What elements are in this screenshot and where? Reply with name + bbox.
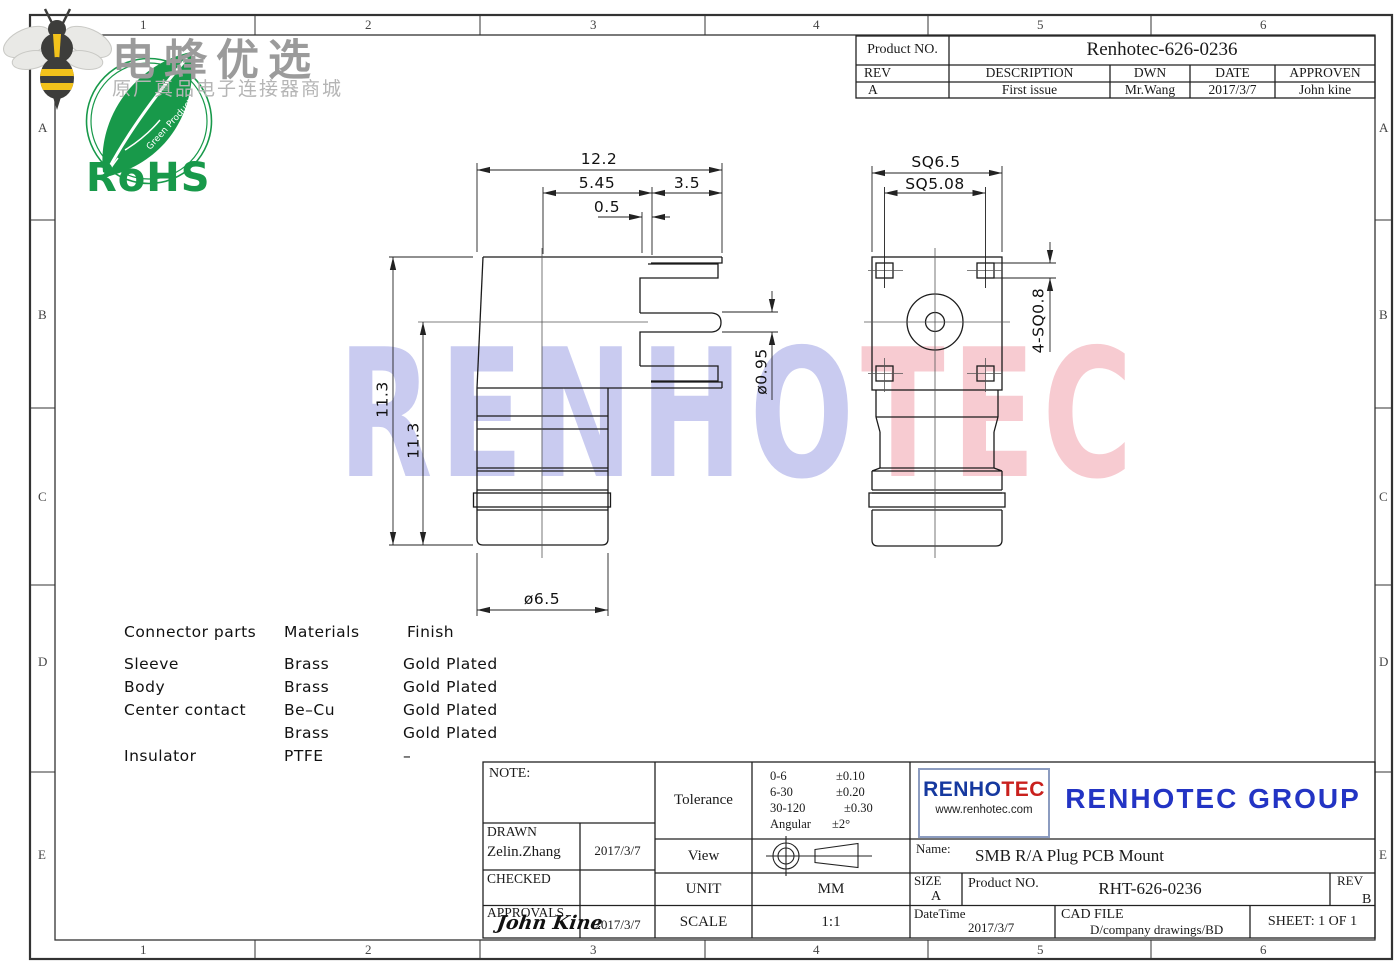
projection-symbol: [766, 836, 872, 876]
brand-slogan: 原厂真品电子连接器商城: [112, 74, 343, 101]
sheet-frame: [30, 15, 1392, 959]
logo-text-tec: TEC: [1001, 778, 1045, 801]
drawing-linework: [0, 0, 1397, 962]
logo-text-renho: RENHO: [923, 778, 1001, 801]
front-view-object: [869, 257, 1005, 546]
renhotec-logo-box: RENHOTEC www.renhotec.com: [918, 768, 1050, 838]
rohs-wordmark: RoHS: [86, 155, 211, 201]
bee-logo-icon: [0, 9, 116, 110]
front-view-dims: [872, 166, 1056, 352]
side-view-object: [474, 257, 723, 545]
renhotec-url: www.renhotec.com: [920, 804, 1048, 816]
company-name: RENHOTEC GROUP: [1058, 783, 1368, 815]
renhotec-logo-text: RENHOTEC: [920, 778, 1048, 802]
engineering-drawing-sheet: { "header_logo": { "brand": "电蜂优选", "slo…: [0, 0, 1397, 962]
rev-table-grid: [856, 36, 1375, 98]
side-view-dims: [389, 163, 778, 616]
side-view-axis: [418, 248, 648, 558]
